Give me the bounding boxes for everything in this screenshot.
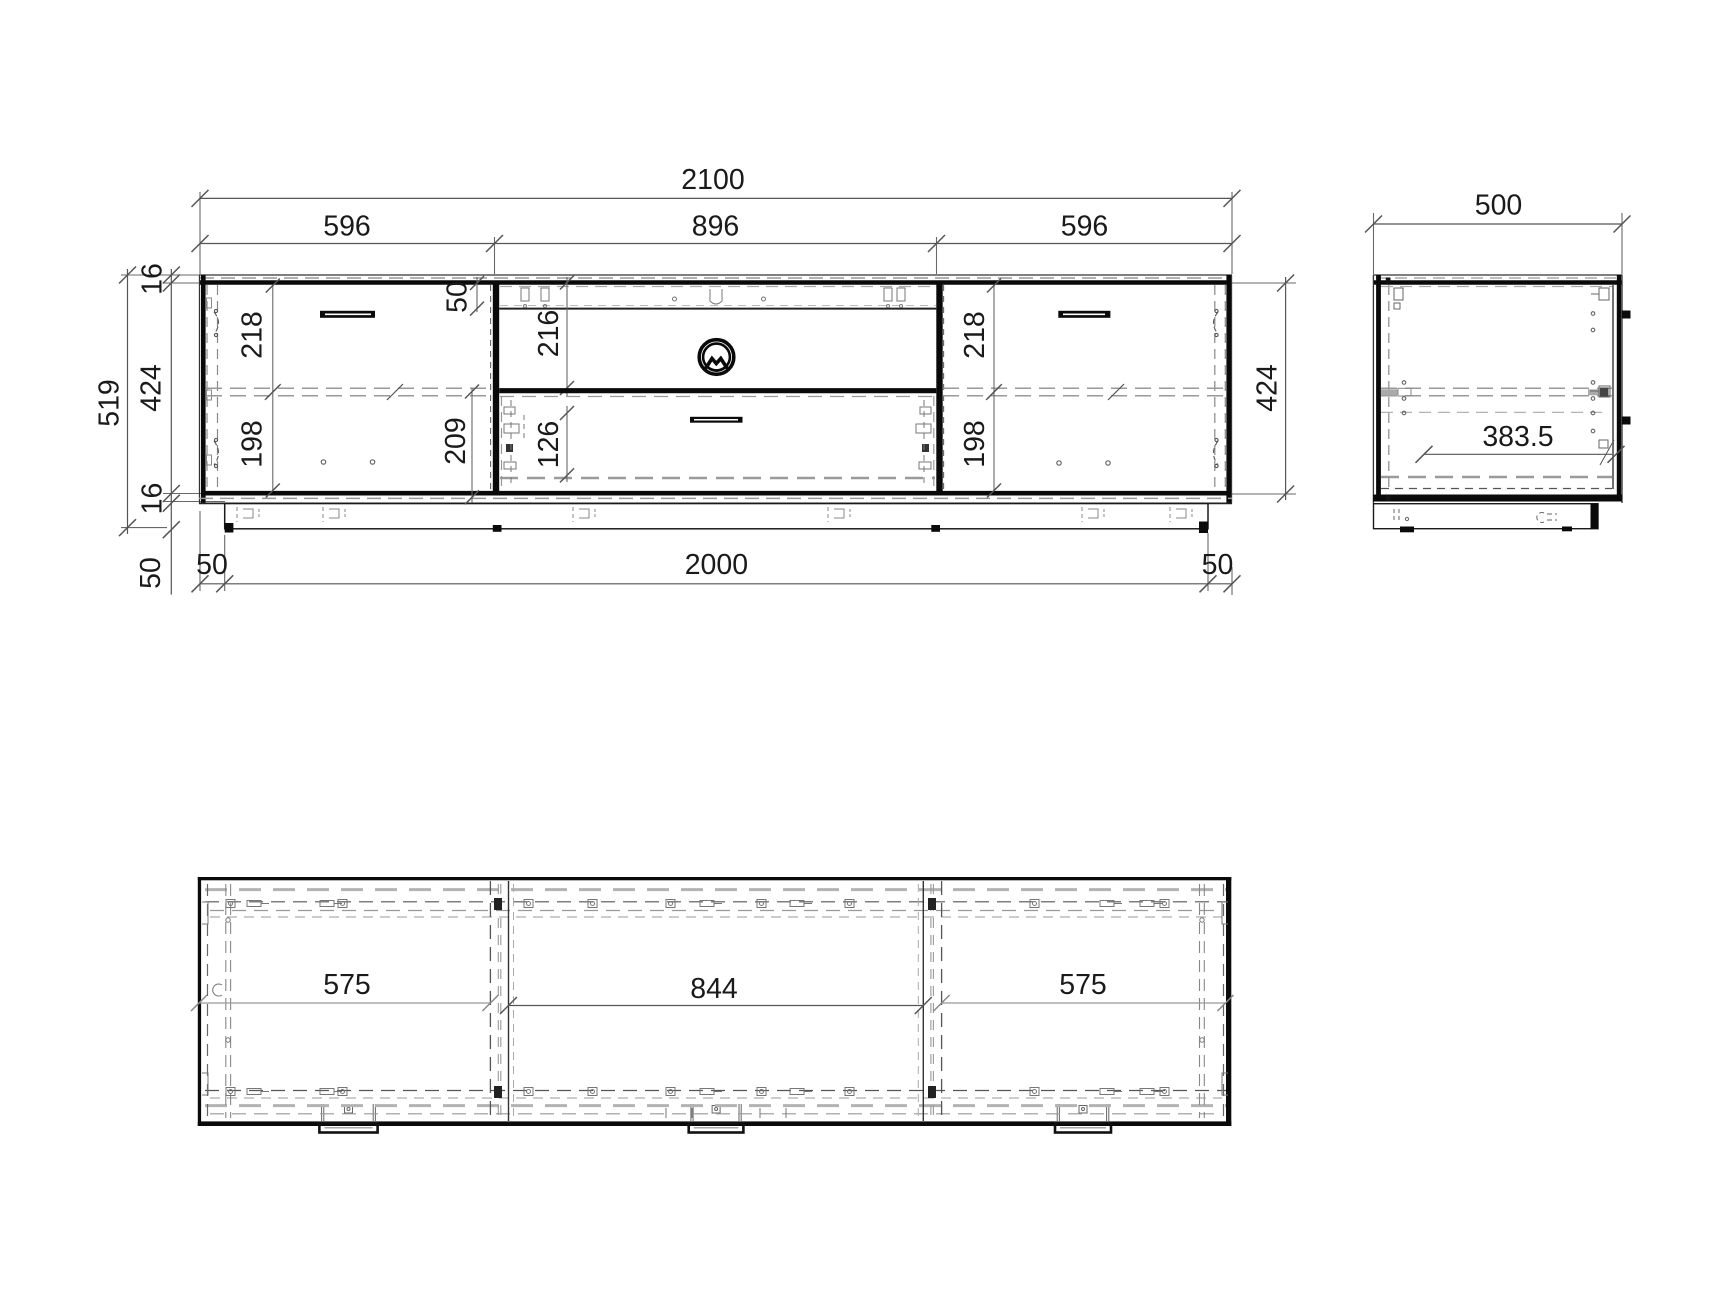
svg-text:383.5: 383.5 xyxy=(1482,421,1553,453)
svg-text:500: 500 xyxy=(1475,190,1523,222)
svg-text:424: 424 xyxy=(1252,364,1284,412)
svg-text:519: 519 xyxy=(94,379,126,427)
svg-text:218: 218 xyxy=(237,311,269,359)
svg-text:2100: 2100 xyxy=(681,164,744,196)
svg-text:50: 50 xyxy=(135,557,167,589)
svg-text:896: 896 xyxy=(692,211,740,243)
svg-text:50: 50 xyxy=(1202,549,1234,581)
svg-text:209: 209 xyxy=(440,417,472,465)
svg-text:198: 198 xyxy=(237,420,269,468)
svg-text:424: 424 xyxy=(136,364,168,412)
svg-text:198: 198 xyxy=(959,420,991,468)
svg-text:50: 50 xyxy=(442,281,474,313)
svg-text:575: 575 xyxy=(1059,969,1107,1001)
svg-text:575: 575 xyxy=(323,969,371,1001)
svg-text:844: 844 xyxy=(690,973,738,1005)
svg-text:16: 16 xyxy=(137,483,169,515)
svg-text:16: 16 xyxy=(137,263,169,295)
svg-text:2000: 2000 xyxy=(685,549,748,581)
svg-text:596: 596 xyxy=(1061,211,1109,243)
svg-text:126: 126 xyxy=(533,421,565,469)
svg-text:216: 216 xyxy=(533,310,565,358)
svg-text:596: 596 xyxy=(323,211,371,243)
svg-text:218: 218 xyxy=(959,311,991,359)
svg-text:50: 50 xyxy=(196,549,228,581)
